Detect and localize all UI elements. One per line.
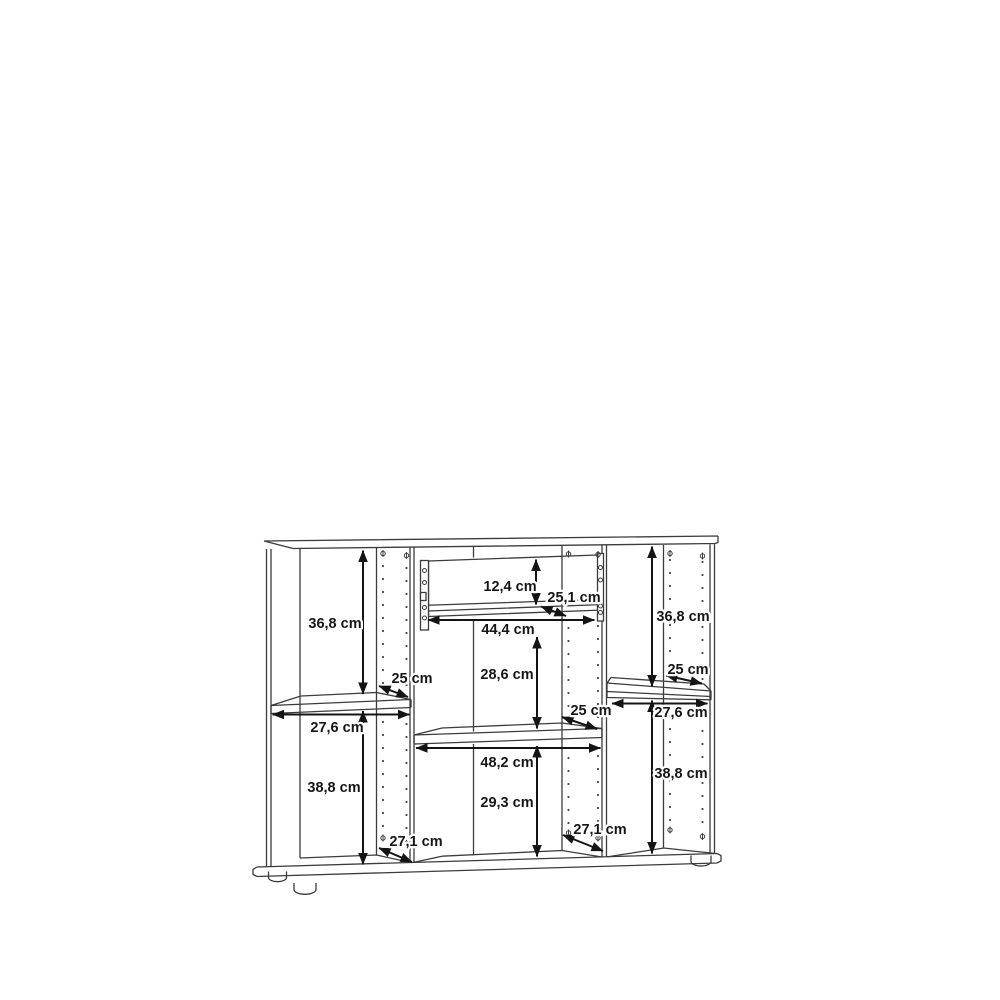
dim-label-left-lower-height: 38,8 cm	[307, 780, 360, 796]
dim-label-right-lower-height: 38,8 cm	[654, 766, 707, 782]
screw-symbol	[381, 835, 385, 842]
top-panel	[264, 536, 718, 549]
right-shelf	[607, 678, 711, 700]
dim-label-drawer-inner-width: 44,4 cm	[481, 622, 534, 638]
cabinet-drawing: 36,8 cm12,4 cm25,1 cm36,8 cm44,4 cm25 cm…	[0, 0, 1000, 1000]
center-shelf	[414, 723, 602, 744]
dim-label-center-inner-width: 48,2 cm	[480, 755, 533, 771]
dim-label-center-lower-height: 29,3 cm	[480, 795, 533, 811]
dim-arrow-left-floor-depth	[379, 848, 412, 862]
dim-label-left-floor-depth: 27,1 cm	[389, 834, 442, 850]
screw-symbol	[668, 827, 672, 834]
dim-label-right-upper-height: 36,8 cm	[656, 609, 709, 625]
furniture-dimension-diagram: 36,8 cm12,4 cm25,1 cm36,8 cm44,4 cm25 cm…	[0, 0, 1000, 1000]
dim-label-right-inner-width: 27,6 cm	[654, 705, 707, 721]
screw-symbol	[381, 550, 385, 557]
dim-label-right-shelf-depth: 25 cm	[667, 662, 708, 678]
dim-label-left-inner-width: 27,6 cm	[310, 720, 363, 736]
screw-symbol	[700, 833, 704, 840]
dim-label-left-upper-height: 36,8 cm	[308, 616, 361, 632]
screw-symbol	[566, 830, 570, 837]
drawer-rail-right	[598, 554, 604, 622]
screw-symbol	[700, 553, 704, 560]
foot-front-left	[294, 883, 316, 894]
dim-label-drawer-inner-height: 12,4 cm	[483, 579, 536, 595]
dim-label-center-upper-height: 28,6 cm	[480, 667, 533, 683]
dim-label-right-floor-depth: 27,1 cm	[573, 822, 626, 838]
screw-symbol	[404, 552, 408, 559]
dim-label-drawer-depth: 25,1 cm	[547, 590, 600, 606]
dim-label-left-shelf-depth: 25 cm	[391, 671, 432, 687]
left-shelf	[271, 693, 411, 714]
screw-symbol	[668, 550, 672, 557]
drawer-rail-left	[421, 561, 429, 631]
dim-label-center-shelf-depth: 25 cm	[570, 703, 611, 719]
divider-left	[377, 547, 415, 862]
foot-right	[691, 856, 711, 867]
